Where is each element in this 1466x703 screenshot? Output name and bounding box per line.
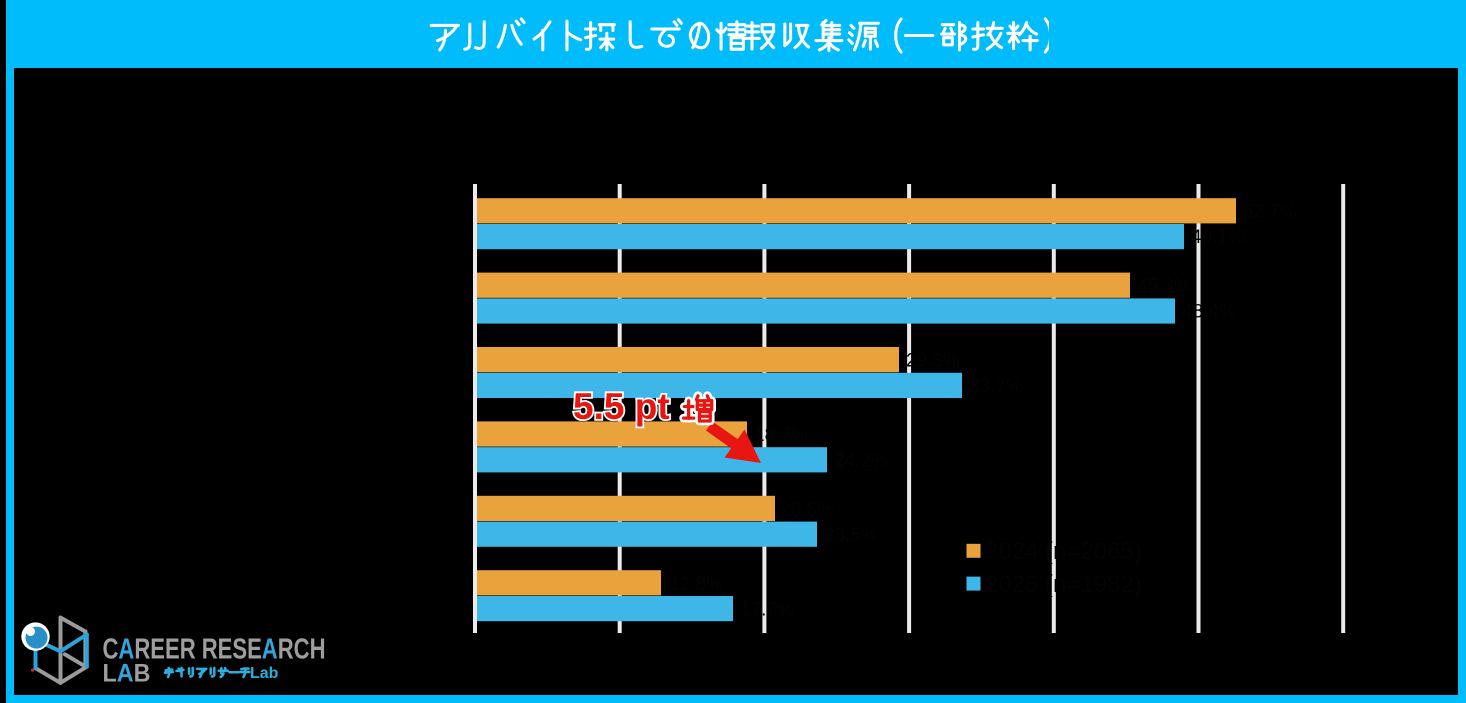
svg-text:45.3%: 45.3% (1137, 276, 1191, 297)
svg-text:5.5 pt: 5.5 pt (573, 386, 670, 427)
svg-text:29.3%: 29.3% (906, 351, 960, 372)
svg-text:17.7%: 17.7% (740, 599, 794, 620)
svg-text:Lab: Lab (250, 665, 279, 682)
svg-text:33.7%: 33.7% (969, 376, 1023, 397)
svg-text:18.7%: 18.7% (754, 425, 808, 446)
svg-text:2025 (n=1982): 2025 (n=1982) (985, 571, 1142, 598)
svg-text:LAB: LAB (103, 659, 151, 687)
svg-text:23.5%: 23.5% (824, 525, 878, 546)
svg-text:48.4%: 48.4% (1182, 302, 1236, 323)
svg-text:20.6%: 20.6% (780, 499, 834, 520)
svg-text:52.7%: 52.7% (1243, 202, 1297, 223)
svg-text:2024 (n=2065): 2024 (n=2065) (985, 538, 1142, 565)
svg-text:49.1%: 49.1% (1191, 227, 1245, 248)
svg-text:12.8%: 12.8% (669, 574, 723, 595)
svg-text:24.2%: 24.2% (834, 450, 888, 471)
